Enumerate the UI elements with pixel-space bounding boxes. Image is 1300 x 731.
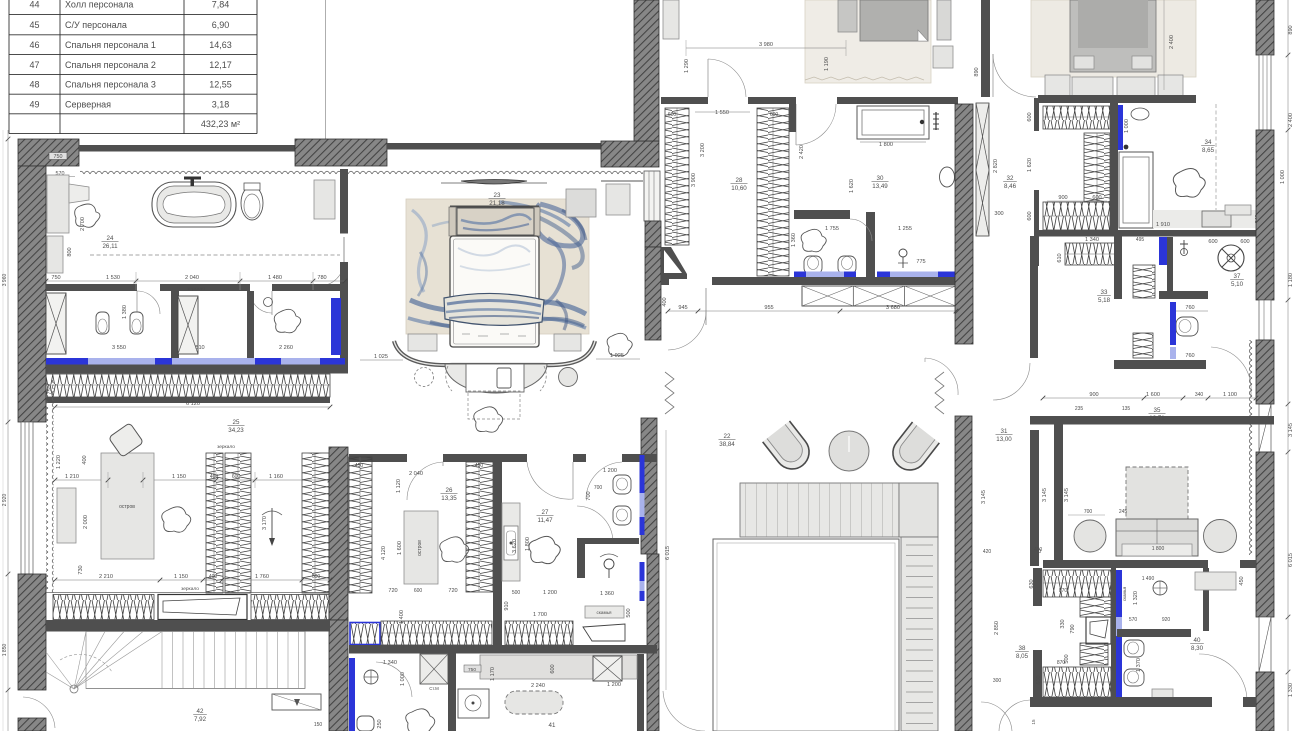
svg-text:500: 500	[626, 608, 632, 617]
svg-text:47: 47	[29, 60, 39, 70]
svg-text:500: 500	[512, 590, 521, 596]
svg-text:135: 135	[1122, 406, 1131, 412]
svg-text:1 380: 1 380	[122, 305, 128, 319]
svg-text:1 620: 1 620	[849, 179, 855, 193]
svg-text:1 120: 1 120	[396, 479, 402, 493]
svg-text:1 340: 1 340	[1085, 237, 1099, 243]
svg-text:1 700: 1 700	[533, 612, 547, 618]
svg-text:400: 400	[662, 297, 668, 306]
svg-text:450: 450	[475, 463, 484, 469]
svg-text:зеркало: зеркало	[217, 445, 235, 450]
svg-text:720: 720	[388, 588, 397, 594]
svg-text:35: 35	[1154, 407, 1161, 414]
svg-text:600: 600	[1240, 239, 1249, 245]
svg-text:4 120: 4 120	[381, 546, 387, 560]
svg-text:13,00: 13,00	[996, 436, 1012, 443]
svg-text:3 145: 3 145	[1064, 488, 1070, 502]
svg-text:1 170: 1 170	[490, 667, 496, 681]
svg-text:7,92: 7,92	[194, 716, 207, 723]
svg-text:30: 30	[877, 175, 884, 182]
svg-text:остров: остров	[119, 504, 135, 510]
svg-text:скамья: скамья	[1122, 586, 1127, 601]
svg-text:1 000: 1 000	[1124, 119, 1130, 133]
svg-text:1 600: 1 600	[1146, 392, 1160, 398]
svg-text:15: 15	[1031, 719, 1036, 725]
svg-text:44: 44	[29, 0, 39, 10]
svg-text:1 160: 1 160	[269, 474, 283, 480]
svg-text:600: 600	[550, 664, 556, 673]
svg-text:330: 330	[1060, 619, 1066, 628]
svg-text:1 150: 1 150	[174, 574, 188, 580]
svg-text:14,63: 14,63	[209, 40, 232, 50]
svg-text:27: 27	[542, 509, 549, 516]
svg-text:1 100: 1 100	[1223, 392, 1237, 398]
svg-text:900: 900	[1089, 392, 1098, 398]
svg-text:26,11: 26,11	[102, 243, 118, 250]
svg-text:610: 610	[1057, 253, 1063, 262]
svg-text:Спальня персонала 2: Спальня персонала 2	[65, 60, 156, 70]
svg-text:24: 24	[107, 235, 114, 242]
svg-text:38,84: 38,84	[719, 441, 735, 448]
svg-text:1 600: 1 600	[397, 541, 403, 555]
svg-text:1 180: 1 180	[1288, 273, 1294, 287]
svg-text:зеркало: зеркало	[181, 587, 199, 592]
svg-text:510: 510	[195, 345, 204, 351]
svg-text:790: 790	[1070, 624, 1076, 633]
svg-text:3 680: 3 680	[886, 305, 900, 311]
svg-text:13,49: 13,49	[872, 183, 888, 190]
svg-text:750: 750	[54, 154, 63, 160]
svg-text:46: 46	[29, 40, 39, 50]
svg-text:Спальня персонала 1: Спальня персонала 1	[65, 40, 156, 50]
svg-text:700: 700	[594, 485, 603, 491]
svg-text:1 150: 1 150	[172, 474, 186, 480]
svg-text:495: 495	[1136, 237, 1145, 243]
svg-text:12,17: 12,17	[209, 60, 232, 70]
svg-text:500: 500	[1064, 654, 1070, 663]
svg-text:45: 45	[29, 20, 39, 30]
svg-text:1 530: 1 530	[106, 275, 120, 281]
svg-text:3 200: 3 200	[700, 143, 706, 157]
svg-text:150: 150	[314, 722, 323, 728]
svg-text:2 400: 2 400	[1288, 113, 1294, 127]
svg-text:31: 31	[1001, 428, 1008, 435]
svg-text:6,90: 6,90	[212, 20, 230, 30]
svg-text:600: 600	[1027, 112, 1033, 121]
svg-text:400: 400	[1034, 547, 1043, 553]
svg-text:40: 40	[1194, 637, 1201, 644]
svg-text:12,55: 12,55	[209, 80, 232, 90]
svg-text:зеркало: зеркало	[187, 287, 205, 292]
svg-text:432,23 м²: 432,23 м²	[201, 119, 240, 129]
svg-text:49: 49	[29, 99, 39, 109]
svg-text:2 210: 2 210	[99, 574, 113, 580]
svg-text:600: 600	[1036, 675, 1042, 684]
svg-text:450: 450	[1239, 576, 1245, 585]
svg-text:400: 400	[82, 455, 88, 464]
svg-text:1 910: 1 910	[1156, 222, 1170, 228]
svg-text:1 480: 1 480	[268, 275, 282, 281]
svg-text:2 420: 2 420	[799, 145, 805, 159]
svg-text:11,47: 11,47	[537, 517, 553, 524]
svg-text:28: 28	[736, 177, 743, 184]
svg-text:750: 750	[51, 275, 60, 281]
svg-text:6 120: 6 120	[186, 401, 200, 407]
svg-text:910: 910	[504, 601, 510, 610]
svg-text:630: 630	[1029, 579, 1035, 588]
svg-text:3 170: 3 170	[262, 516, 268, 530]
svg-text:8,46: 8,46	[1004, 183, 1017, 190]
svg-text:33: 33	[1101, 289, 1108, 296]
svg-text:720: 720	[448, 588, 457, 594]
svg-text:Серверная: Серверная	[65, 99, 111, 109]
svg-text:остров: остров	[417, 540, 423, 556]
svg-text:600: 600	[668, 112, 677, 118]
svg-text:21,18: 21,18	[489, 200, 505, 207]
svg-text:1 200: 1 200	[543, 590, 557, 596]
svg-text:48: 48	[29, 80, 39, 90]
svg-text:600: 600	[770, 112, 779, 118]
svg-text:1 025: 1 025	[374, 354, 388, 360]
svg-text:1 290: 1 290	[684, 59, 690, 73]
svg-text:945: 945	[678, 305, 687, 311]
svg-text:1 190: 1 190	[824, 57, 830, 71]
svg-text:1 800: 1 800	[879, 142, 893, 148]
svg-text:2 400: 2 400	[1169, 35, 1175, 49]
svg-text:800: 800	[67, 247, 73, 256]
svg-text:1 320: 1 320	[1133, 591, 1139, 605]
svg-text:450: 450	[355, 463, 364, 469]
svg-text:5,18: 5,18	[1098, 297, 1111, 304]
svg-text:3 145: 3 145	[981, 490, 987, 504]
svg-text:38: 38	[1019, 645, 1026, 652]
svg-text:1 550: 1 550	[715, 110, 729, 116]
svg-text:5,10: 5,10	[1231, 281, 1244, 288]
svg-text:42: 42	[197, 708, 204, 715]
svg-text:1 755: 1 755	[825, 226, 839, 232]
svg-text:890: 890	[1288, 25, 1294, 34]
svg-text:730: 730	[78, 565, 84, 574]
svg-text:1 370: 1 370	[1136, 658, 1142, 672]
svg-text:2 040: 2 040	[409, 471, 423, 477]
svg-text:2 240: 2 240	[531, 683, 545, 689]
svg-text:900: 900	[1058, 195, 1067, 201]
svg-text:700: 700	[586, 491, 592, 500]
svg-text:700: 700	[1084, 509, 1093, 515]
svg-text:2 040: 2 040	[185, 275, 199, 281]
svg-text:34: 34	[1205, 139, 1212, 146]
svg-text:22: 22	[724, 433, 731, 440]
svg-text:2 850: 2 850	[994, 621, 1000, 635]
svg-text:7,84: 7,84	[212, 0, 230, 10]
svg-text:570: 570	[1129, 617, 1138, 623]
svg-text:1 850: 1 850	[2, 644, 8, 657]
svg-text:245: 245	[1119, 509, 1128, 515]
svg-text:2 920: 2 920	[2, 494, 8, 507]
svg-text:2 700: 2 700	[80, 217, 86, 231]
svg-text:25: 25	[233, 419, 240, 426]
svg-text:3 145: 3 145	[1288, 423, 1294, 437]
svg-text:Холл персонала: Холл персонала	[65, 0, 133, 10]
svg-text:1 330: 1 330	[1288, 683, 1294, 697]
svg-text:1 490: 1 490	[1142, 576, 1155, 582]
svg-text:600: 600	[1027, 211, 1033, 220]
svg-text:340: 340	[1195, 392, 1204, 398]
svg-text:3,18: 3,18	[212, 99, 230, 109]
svg-text:3 620: 3 620	[512, 539, 518, 553]
svg-text:1 220: 1 220	[56, 455, 62, 469]
svg-text:8,65: 8,65	[1202, 147, 1215, 154]
svg-text:1 620: 1 620	[1027, 158, 1033, 172]
svg-text:1 000: 1 000	[400, 672, 406, 686]
svg-text:235: 235	[1075, 406, 1084, 412]
svg-text:2 000: 2 000	[83, 515, 89, 529]
svg-text:23: 23	[494, 192, 501, 199]
svg-text:1 360: 1 360	[600, 591, 614, 597]
svg-text:780: 780	[317, 275, 326, 281]
svg-text:3 145: 3 145	[1042, 488, 1048, 502]
svg-text:2 820: 2 820	[993, 159, 999, 173]
svg-text:600: 600	[312, 574, 321, 580]
svg-text:420: 420	[983, 549, 992, 555]
svg-text:600: 600	[1208, 239, 1217, 245]
svg-text:С/У персонала: С/У персонала	[65, 20, 127, 30]
svg-text:760: 760	[1185, 353, 1194, 359]
svg-text:1 200: 1 200	[607, 682, 621, 688]
svg-text:3 550: 3 550	[112, 345, 126, 351]
svg-text:400: 400	[209, 574, 218, 580]
svg-text:870: 870	[1059, 588, 1068, 594]
svg-text:3 960: 3 960	[2, 274, 8, 287]
svg-text:3 900: 3 900	[691, 173, 697, 187]
svg-text:1 000: 1 000	[1280, 170, 1286, 184]
svg-text:37: 37	[1234, 273, 1241, 280]
svg-text:1 200: 1 200	[603, 468, 617, 474]
svg-text:10,60: 10,60	[731, 185, 747, 192]
svg-text:8,30: 8,30	[1191, 645, 1204, 652]
svg-text:250: 250	[377, 719, 383, 728]
svg-text:13,35: 13,35	[441, 495, 457, 502]
svg-text:41: 41	[549, 722, 556, 729]
svg-text:760: 760	[1185, 305, 1194, 311]
svg-text:300: 300	[993, 678, 1002, 684]
svg-text:1 800: 1 800	[1152, 546, 1165, 552]
svg-text:1 800: 1 800	[525, 537, 531, 551]
svg-text:1 210: 1 210	[65, 474, 79, 480]
svg-text:750: 750	[468, 667, 476, 673]
svg-text:Спальня персонала 3: Спальня персонала 3	[65, 80, 156, 90]
svg-text:955: 955	[764, 305, 773, 311]
svg-text:2 260: 2 260	[279, 345, 293, 351]
svg-text:920: 920	[1162, 617, 1171, 623]
svg-text:1 360: 1 360	[791, 233, 797, 247]
svg-text:Ст.М: Ст.М	[429, 686, 439, 691]
svg-text:8,05: 8,05	[1016, 653, 1029, 660]
svg-text:600: 600	[1092, 195, 1101, 201]
svg-text:18,71: 18,71	[1149, 415, 1165, 422]
svg-text:890: 890	[974, 67, 980, 76]
svg-text:775: 775	[916, 259, 925, 265]
svg-text:600: 600	[414, 588, 423, 594]
svg-text:скамья: скамья	[596, 610, 612, 615]
svg-text:3 980: 3 980	[759, 42, 773, 48]
svg-text:32: 32	[1007, 175, 1014, 182]
svg-text:34,23: 34,23	[228, 427, 244, 434]
svg-text:1 760: 1 760	[255, 574, 269, 580]
svg-text:6 015: 6 015	[1288, 553, 1294, 567]
svg-text:1 255: 1 255	[898, 226, 912, 232]
svg-text:26: 26	[446, 487, 453, 494]
svg-text:300: 300	[994, 211, 1003, 217]
